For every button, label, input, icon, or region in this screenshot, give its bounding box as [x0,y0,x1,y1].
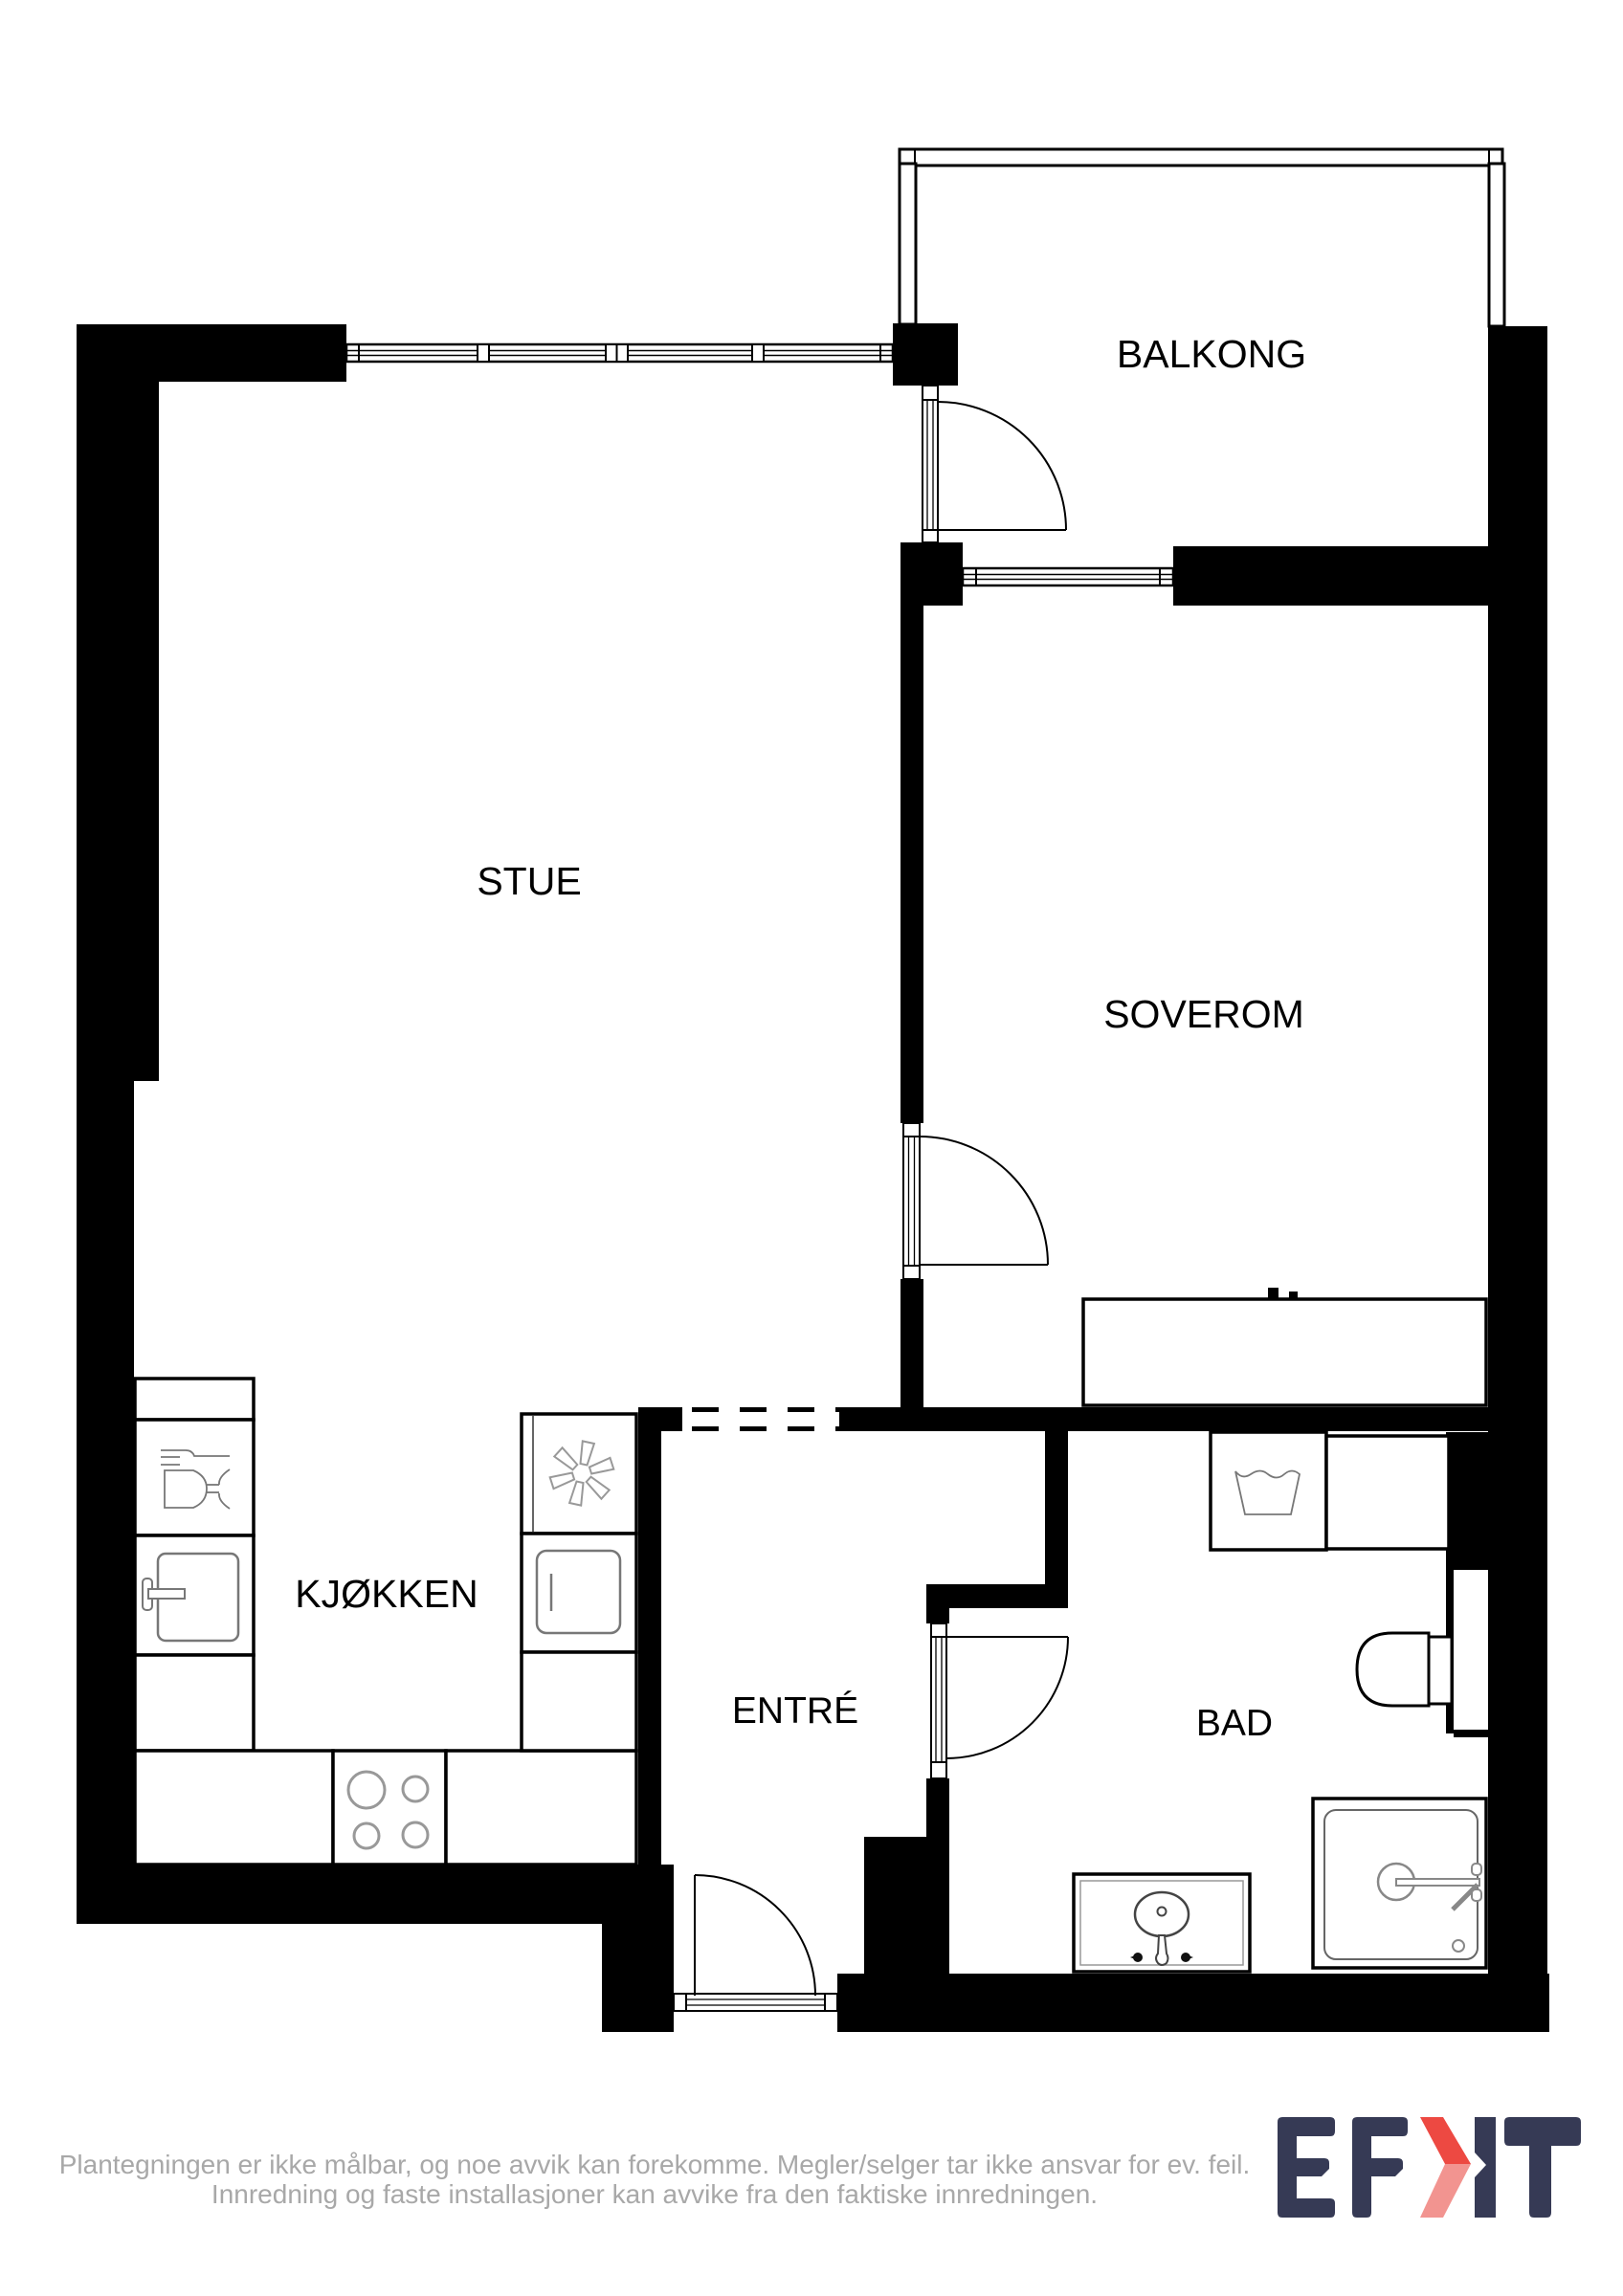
svg-text:STUE: STUE [477,859,581,903]
svg-text:SOVEROM: SOVEROM [1103,992,1304,1036]
svg-text:KJØKKEN: KJØKKEN [295,1572,478,1616]
svg-text:Innredning og faste installasj: Innredning og faste installasjoner kan a… [211,2179,1098,2209]
svg-text:BAD: BAD [1196,1703,1273,1744]
svg-text:ENTRÉ: ENTRÉ [732,1690,858,1732]
svg-text:BALKONG: BALKONG [1117,332,1306,376]
svg-text:Plantegningen er ikke målbar,: Plantegningen er ikke målbar, og noe avv… [59,2150,1251,2179]
